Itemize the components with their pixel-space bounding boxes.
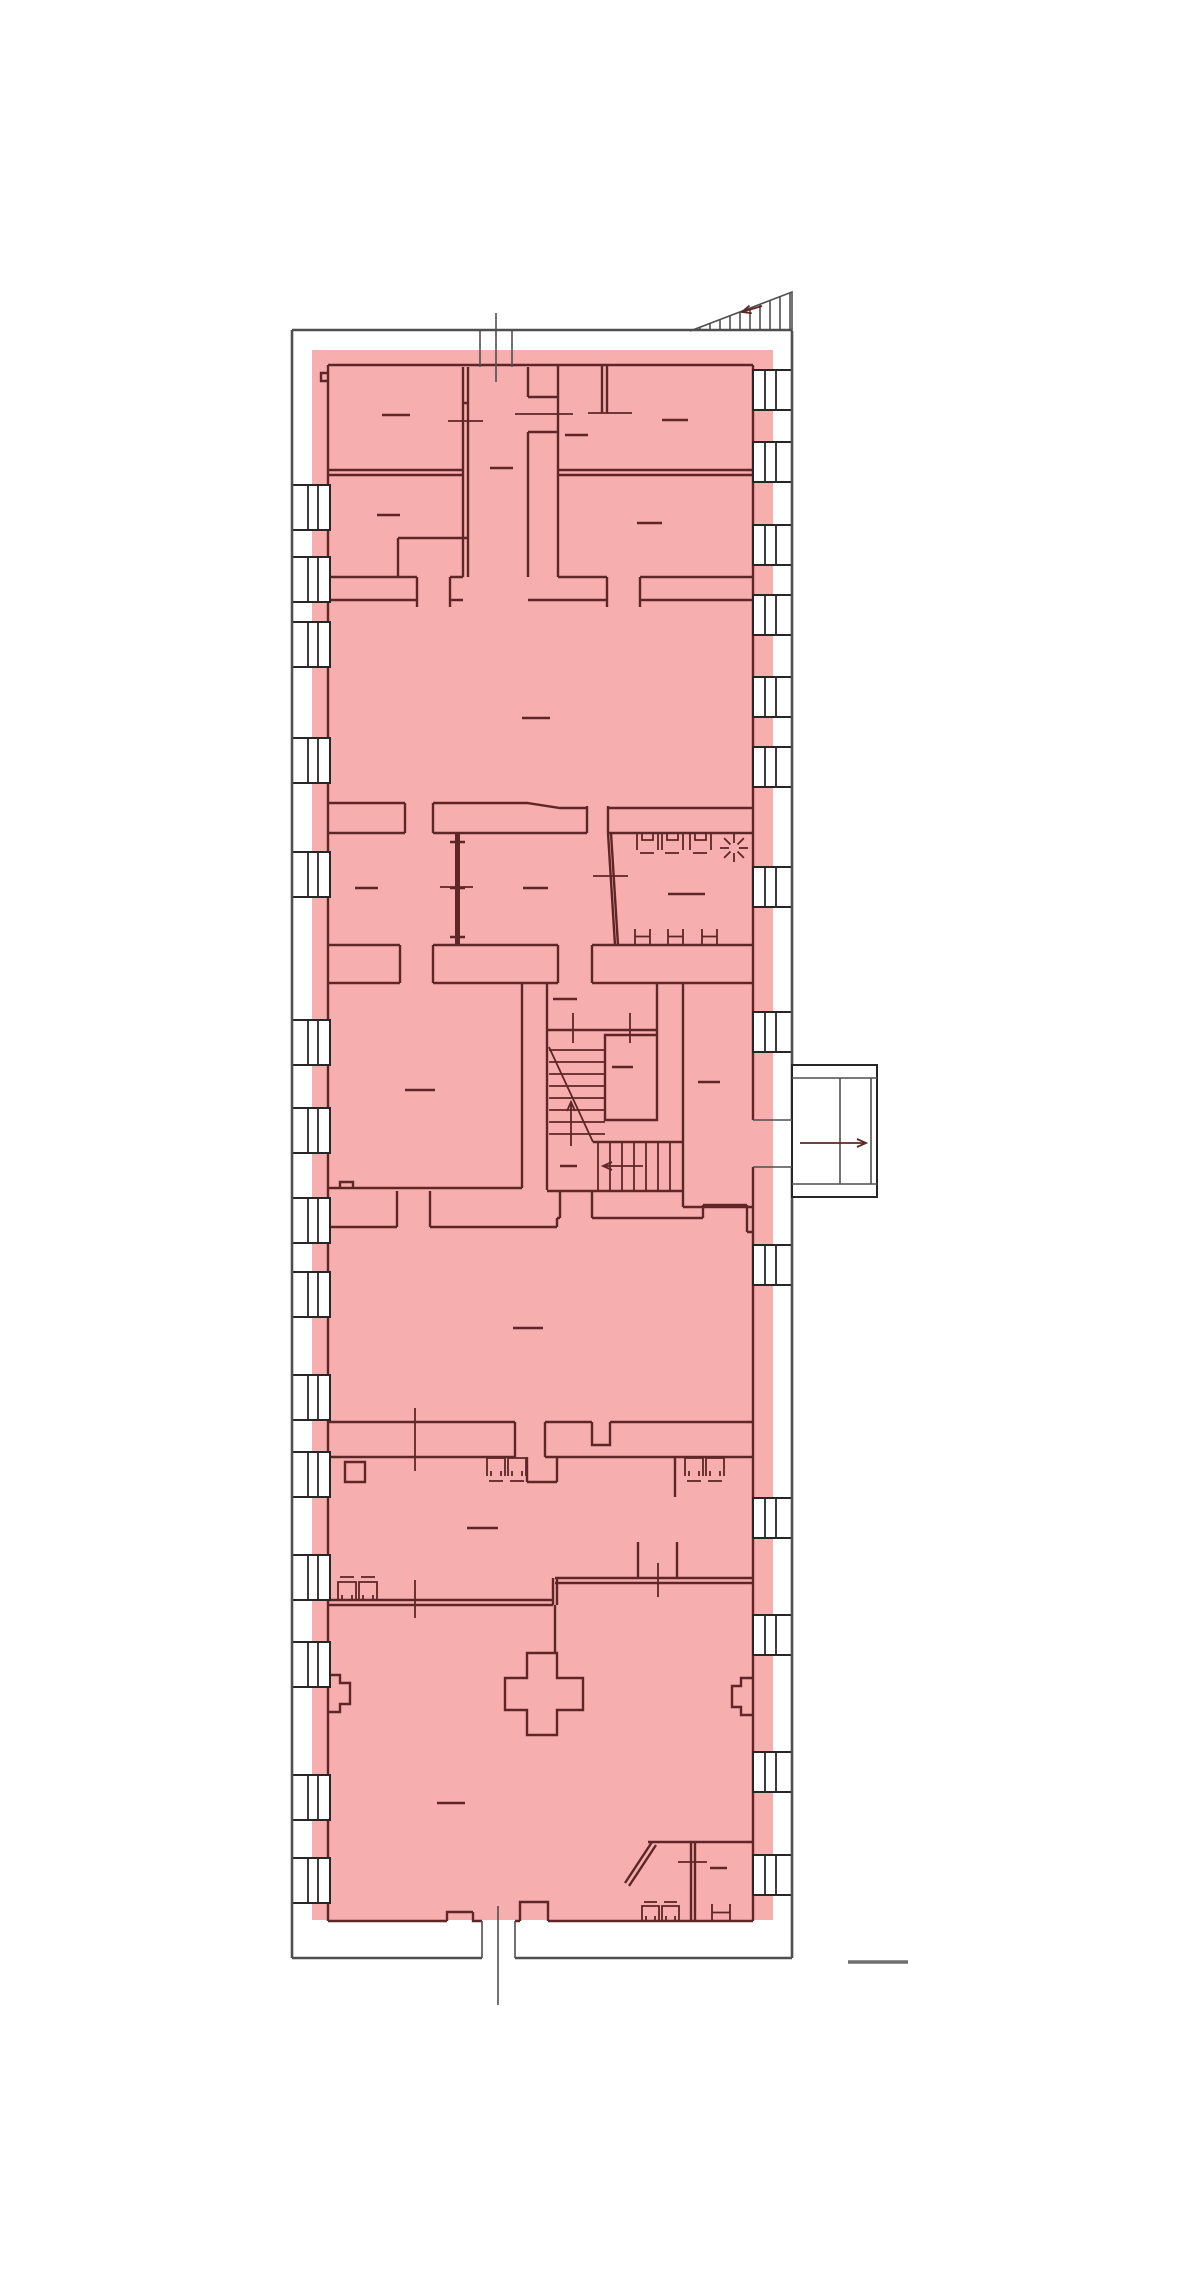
floor-plan-page (0, 0, 1200, 2270)
window-right (753, 1245, 792, 1285)
window-left (292, 1020, 330, 1065)
window-left (292, 1642, 330, 1687)
window-left (292, 1272, 330, 1317)
window-left (292, 1198, 330, 1243)
window-left (292, 485, 330, 530)
window-right (753, 370, 792, 410)
window-right (753, 525, 792, 565)
window-right (753, 747, 792, 787)
window-right (753, 677, 792, 717)
window-left (292, 1775, 330, 1820)
window-left (292, 738, 330, 783)
landing-outline (792, 1065, 877, 1197)
window-left (292, 1858, 330, 1903)
exterior-stair-top-right (690, 292, 792, 331)
window-right (753, 442, 792, 482)
window-right (753, 1012, 792, 1052)
floor-plan-drawing (0, 0, 1200, 2270)
toilet-row-solid-partition (455, 833, 460, 945)
window-right (753, 1498, 792, 1538)
highlight-overlay (312, 350, 773, 1920)
window-left (292, 1108, 330, 1153)
highlight-area (312, 350, 773, 1920)
window-right (753, 595, 792, 635)
window-right (753, 1855, 792, 1895)
exterior-stair-outline (690, 292, 792, 331)
window-right (753, 1615, 792, 1655)
window-left (292, 1452, 330, 1497)
window-right (753, 867, 792, 907)
window-left (292, 1555, 330, 1600)
window-left (292, 1375, 330, 1420)
window-left (292, 852, 330, 897)
window-left (292, 557, 330, 602)
window-right (753, 1752, 792, 1792)
window-left (292, 622, 330, 667)
